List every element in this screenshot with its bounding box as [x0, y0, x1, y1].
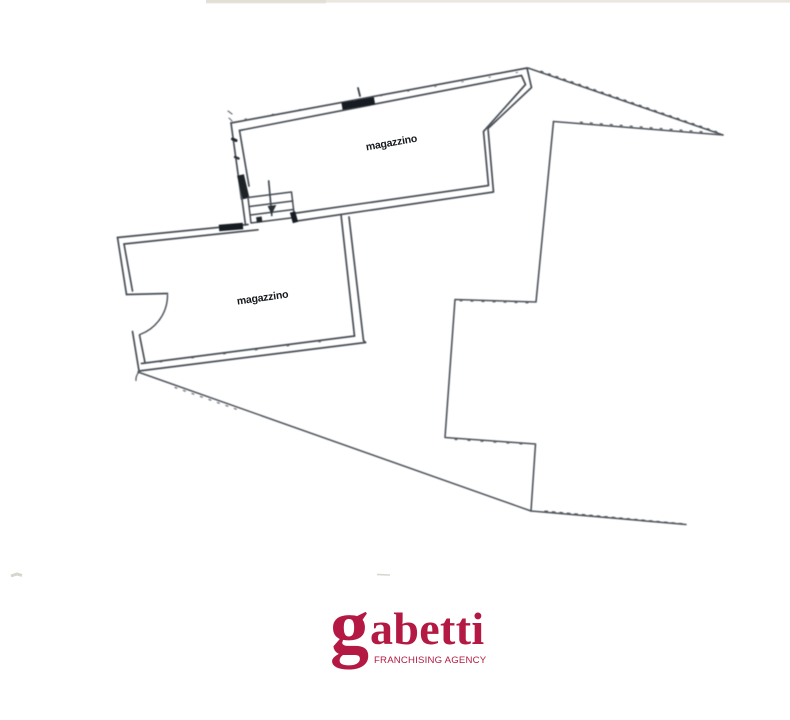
- svg-text:magazzino: magazzino: [365, 133, 418, 154]
- svg-text:g: g: [330, 582, 369, 669]
- svg-text:magazzino: magazzino: [236, 288, 289, 307]
- svg-text:FRANCHISING AGENCY: FRANCHISING AGENCY: [374, 655, 487, 666]
- svg-text:abetti: abetti: [370, 603, 485, 654]
